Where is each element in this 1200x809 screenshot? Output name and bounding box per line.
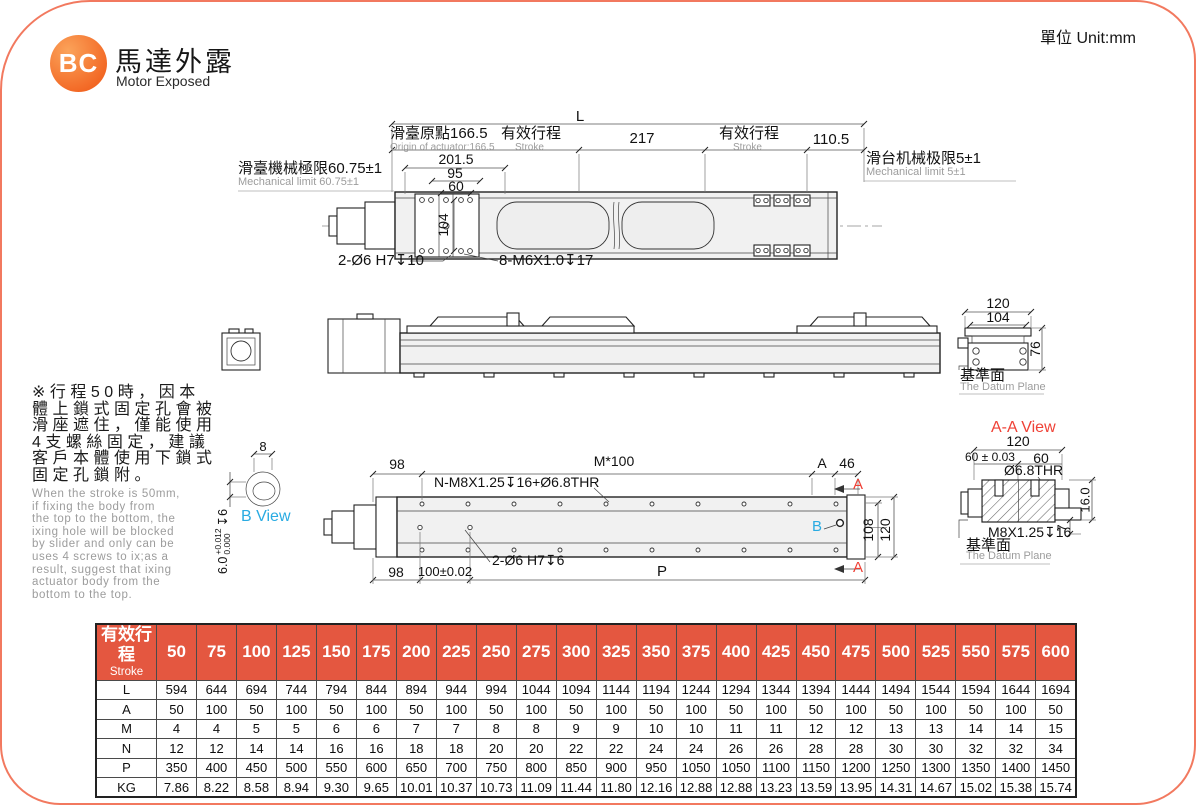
- table-cell: 9: [556, 719, 596, 739]
- aa-thru-hole-note: Ø6.8THR: [1004, 463, 1063, 477]
- mech-limit-left-zh: 滑臺機械極限60.75±1: [238, 161, 382, 176]
- table-cell: 50: [956, 700, 996, 720]
- dim-P: P: [657, 564, 667, 579]
- table-cell: 1194: [636, 680, 676, 700]
- unit-label: 單位 Unit:mm: [1040, 24, 1136, 48]
- datum-plane-en: The Datum Plane: [960, 382, 1046, 393]
- dim-120-vertical: 120: [878, 518, 892, 541]
- stroke-col-header: 125: [276, 624, 316, 680]
- table-row: P350400450500550600650700750800850900950…: [96, 758, 1076, 778]
- table-row: N121214141616181820202222242426262828303…: [96, 739, 1076, 759]
- table-cell: 14: [996, 719, 1036, 739]
- table-cell: 7.86: [157, 778, 197, 798]
- table-cell: 100: [436, 700, 476, 720]
- dim-46: 46: [839, 456, 855, 470]
- table-cell: 10.37: [436, 778, 476, 798]
- stroke-col-header: 150: [316, 624, 356, 680]
- table-cell: 1544: [916, 680, 956, 700]
- table-cell: 30: [876, 739, 916, 759]
- table-cell: 1344: [756, 680, 796, 700]
- tolerance-minus: 0.000: [223, 528, 232, 554]
- table-cell: 1444: [836, 680, 876, 700]
- table-cell: 1450: [1036, 758, 1076, 778]
- end-view-dim-104: 104: [986, 310, 1009, 324]
- table-cell: 50: [157, 700, 197, 720]
- table-cell: 800: [516, 758, 556, 778]
- table-cell: 1150: [796, 758, 836, 778]
- table-cell: 12: [836, 719, 876, 739]
- table-cell: 28: [836, 739, 876, 759]
- end-view-dim-76: 76: [1028, 341, 1042, 357]
- table-cell: 1494: [876, 680, 916, 700]
- table-cell: 100: [676, 700, 716, 720]
- stroke-col-header: 325: [596, 624, 636, 680]
- stroke-col-header: 250: [476, 624, 516, 680]
- stroke-col-header: 400: [716, 624, 756, 680]
- table-cell: 900: [596, 758, 636, 778]
- stroke-label-zh-2: 有效行程: [719, 126, 779, 141]
- table-cell: 100: [276, 700, 316, 720]
- table-cell: 1100: [756, 758, 796, 778]
- table-cell: 9.65: [356, 778, 396, 798]
- table-cell: 10: [676, 719, 716, 739]
- bc-logo: BC: [50, 35, 107, 92]
- tolerance-stack: +0.012 0.000: [214, 528, 232, 554]
- table-cell: 1200: [836, 758, 876, 778]
- dim-100-tol: 100±0.02: [418, 565, 472, 578]
- table-cell: 15.02: [956, 778, 996, 798]
- row-label: N: [96, 739, 157, 759]
- table-cell: 8: [516, 719, 556, 739]
- row-label: A: [96, 700, 157, 720]
- table-cell: 12: [157, 739, 197, 759]
- table-cell: 20: [516, 739, 556, 759]
- stroke-col-header: 575: [996, 624, 1036, 680]
- table-cell: 1300: [916, 758, 956, 778]
- stroke-col-header: 450: [796, 624, 836, 680]
- stroke-col-header: 300: [556, 624, 596, 680]
- row-label: KG: [96, 778, 157, 798]
- stroke-label-zh: 有效行程: [501, 126, 561, 141]
- table-cell: 1050: [716, 758, 756, 778]
- table-cell: 50: [716, 700, 756, 720]
- table-cell: 1644: [996, 680, 1036, 700]
- table-cell: 100: [596, 700, 636, 720]
- table-cell: 15: [1036, 719, 1076, 739]
- table-header-row: 有效行程Stroke507510012515017520022525027530…: [96, 624, 1076, 680]
- table-cell: 750: [476, 758, 516, 778]
- table-cell: 100: [356, 700, 396, 720]
- table-cell: 550: [316, 758, 356, 778]
- table-cell: 894: [396, 680, 436, 700]
- origin-label-zh: 滑臺原點166.5: [390, 126, 488, 141]
- table-cell: 1050: [676, 758, 716, 778]
- table-cell: 594: [157, 680, 197, 700]
- table-cell: 744: [276, 680, 316, 700]
- table-cell: 18: [396, 739, 436, 759]
- table-cell: 944: [436, 680, 476, 700]
- dim-60: 60: [448, 179, 464, 193]
- dim-217: 217: [629, 131, 654, 146]
- table-cell: 50: [476, 700, 516, 720]
- table-cell: 1244: [676, 680, 716, 700]
- table-cell: 1094: [556, 680, 596, 700]
- table-cell: 13: [916, 719, 956, 739]
- table-cell: 18: [436, 739, 476, 759]
- table-cell: 9.30: [316, 778, 356, 798]
- aa-datum-plane-en: The Datum Plane: [966, 551, 1052, 562]
- page-title-en: Motor Exposed: [116, 73, 210, 89]
- table-cell: 5: [236, 719, 276, 739]
- stroke-col-header: 600: [1036, 624, 1076, 680]
- dim-98-top: 98: [389, 457, 405, 471]
- table-cell: 50: [1036, 700, 1076, 720]
- table-cell: 13: [876, 719, 916, 739]
- table-cell: 794: [316, 680, 356, 700]
- table-cell: 600: [356, 758, 396, 778]
- table-cell: 20: [476, 739, 516, 759]
- table-cell: 100: [196, 700, 236, 720]
- table-cell: 50: [396, 700, 436, 720]
- b-detail-marker: B: [812, 519, 822, 534]
- table-cell: 1594: [956, 680, 996, 700]
- dim-98-bottom: 98: [388, 565, 404, 579]
- table-cell: 9: [596, 719, 636, 739]
- table-cell: 850: [556, 758, 596, 778]
- table-cell: 22: [596, 739, 636, 759]
- dim-201-5: 201.5: [438, 152, 473, 166]
- table-cell: 50: [556, 700, 596, 720]
- table-cell: 10: [636, 719, 676, 739]
- table-cell: 7: [396, 719, 436, 739]
- stroke-col-header: 275: [516, 624, 556, 680]
- b-view-dim-8: 8: [259, 440, 266, 453]
- table-cell: 5: [276, 719, 316, 739]
- table-cell: 16: [316, 739, 356, 759]
- table-cell: 8.94: [276, 778, 316, 798]
- table-cell: 4: [157, 719, 197, 739]
- section-a-label-bottom: A: [853, 560, 863, 575]
- table-cell: 26: [716, 739, 756, 759]
- datasheet-page: BC 馬達外露 Motor Exposed 單位 Unit:mm: [0, 0, 1196, 805]
- table-cell: 28: [796, 739, 836, 759]
- table-cell: 1694: [1036, 680, 1076, 700]
- stroke-header-cell: 有效行程Stroke: [96, 624, 157, 680]
- table-cell: 694: [236, 680, 276, 700]
- b-view-tolerance: 6.0 +0.012 0.000 ↧6: [214, 509, 232, 574]
- table-cell: 50: [236, 700, 276, 720]
- stroke-col-header: 425: [756, 624, 796, 680]
- row-label: L: [96, 680, 157, 700]
- table-cell: 12.16: [636, 778, 676, 798]
- table-cell: 1250: [876, 758, 916, 778]
- table-cell: 14: [236, 739, 276, 759]
- stroke-col-header: 175: [356, 624, 396, 680]
- table-cell: 994: [476, 680, 516, 700]
- table-cell: 450: [236, 758, 276, 778]
- table-cell: 12: [796, 719, 836, 739]
- stroke-col-header: 475: [836, 624, 876, 680]
- table-cell: 11.80: [596, 778, 636, 798]
- table-cell: 844: [356, 680, 396, 700]
- stroke-label-en-2: Stroke: [733, 143, 762, 153]
- stroke-col-header: 500: [876, 624, 916, 680]
- table-cell: 50: [636, 700, 676, 720]
- table-cell: 14.31: [876, 778, 916, 798]
- dim-108-vertical: 108: [861, 518, 875, 541]
- table-cell: 11: [756, 719, 796, 739]
- dim-L: L: [576, 109, 584, 124]
- thread-note: N-M8X1.25↧16+Ø6.8THR: [434, 475, 599, 489]
- table-cell: 8.22: [196, 778, 236, 798]
- table-cell: 24: [676, 739, 716, 759]
- table-cell: 100: [756, 700, 796, 720]
- dim-m100: M*100: [594, 454, 634, 468]
- table-row: A501005010050100501005010050100501005010…: [96, 700, 1076, 720]
- stroke-table: 有效行程Stroke507510012515017520022525027530…: [95, 623, 1077, 798]
- stroke-col-header: 200: [396, 624, 436, 680]
- section-a-label-top: A: [853, 477, 863, 492]
- table-cell: 34: [1036, 739, 1076, 759]
- table-cell: 7: [436, 719, 476, 739]
- stroke-col-header: 525: [916, 624, 956, 680]
- hole-note-dowel-top: 2-Ø6 H7↧10: [338, 253, 424, 268]
- table-cell: 6: [316, 719, 356, 739]
- stroke-col-header: 350: [636, 624, 676, 680]
- side-view-drawing: [222, 309, 1046, 394]
- table-cell: 12.88: [716, 778, 756, 798]
- table-cell: 100: [916, 700, 956, 720]
- stroke-note-en: When the stroke is 50mm, if fixing the b…: [32, 488, 180, 601]
- table-cell: 50: [876, 700, 916, 720]
- table-cell: 50: [316, 700, 356, 720]
- aa-dim-120: 120: [1006, 434, 1029, 448]
- table-cell: 10.01: [396, 778, 436, 798]
- end-view-dim-120: 120: [986, 296, 1009, 310]
- mech-limit-right-en: Mechanical limit 5±1: [866, 167, 966, 178]
- dim-104-vertical: 104: [436, 213, 450, 236]
- stroke-label-en: Stroke: [515, 143, 544, 153]
- table-cell: 400: [196, 758, 236, 778]
- stroke-note-zh: ※行程50時，因本 體上鎖式固定孔會被 滑座遮住，僅能使用 4支螺絲固定，建議 …: [32, 385, 217, 484]
- table-cell: 1394: [796, 680, 836, 700]
- table-cell: 4: [196, 719, 236, 739]
- table-cell: 15.38: [996, 778, 1036, 798]
- stroke-col-header: 100: [236, 624, 276, 680]
- table-cell: 14: [956, 719, 996, 739]
- row-label: P: [96, 758, 157, 778]
- table-cell: 1294: [716, 680, 756, 700]
- mech-limit-left-en: Mechanical limit 60.75±1: [238, 177, 359, 188]
- table-row: KG7.868.228.588.949.309.6510.0110.3710.7…: [96, 778, 1076, 798]
- table-cell: 22: [556, 739, 596, 759]
- table-cell: 1144: [596, 680, 636, 700]
- table-cell: 24: [636, 739, 676, 759]
- table-cell: 12: [196, 739, 236, 759]
- table-cell: 650: [396, 758, 436, 778]
- table-cell: 15.74: [1036, 778, 1076, 798]
- table-cell: 13.59: [796, 778, 836, 798]
- table-cell: 11.44: [556, 778, 596, 798]
- b-view-title: B View: [241, 509, 291, 525]
- table-cell: 6: [356, 719, 396, 739]
- table-cell: 644: [196, 680, 236, 700]
- table-cell: 350: [157, 758, 197, 778]
- top-view-drawing: [238, 121, 1016, 261]
- hole-note-dowel-bottom: 2-Ø6 H7↧6: [492, 553, 564, 567]
- table-cell: 100: [996, 700, 1036, 720]
- stroke-col-header: 225: [436, 624, 476, 680]
- row-label: M: [96, 719, 157, 739]
- table-cell: 100: [836, 700, 876, 720]
- table-cell: 13.23: [756, 778, 796, 798]
- table-cell: 500: [276, 758, 316, 778]
- table-cell: 8: [476, 719, 516, 739]
- table-cell: 14.67: [916, 778, 956, 798]
- table-cell: 30: [916, 739, 956, 759]
- mech-limit-right-zh: 滑台机械极限5±1: [866, 151, 981, 166]
- table-cell: 32: [956, 739, 996, 759]
- table-cell: 1400: [996, 758, 1036, 778]
- table-cell: 11.09: [516, 778, 556, 798]
- table-cell: 26: [756, 739, 796, 759]
- table-cell: 1044: [516, 680, 556, 700]
- tolerance-nominal: 6.0: [216, 557, 230, 574]
- table-cell: 11: [716, 719, 756, 739]
- table-cell: 700: [436, 758, 476, 778]
- table-cell: 950: [636, 758, 676, 778]
- table-cell: 14: [276, 739, 316, 759]
- table-cell: 100: [516, 700, 556, 720]
- table-row: M4455667788991010111112121313141415: [96, 719, 1076, 739]
- table-cell: 16: [356, 739, 396, 759]
- tolerance-depth: ↧6: [215, 509, 230, 526]
- table-cell: 13.95: [836, 778, 876, 798]
- table-cell: 10.73: [476, 778, 516, 798]
- stroke-col-header: 75: [196, 624, 236, 680]
- dim-A: A: [817, 456, 826, 470]
- table-cell: 32: [996, 739, 1036, 759]
- aa-dim-16: 16.0: [1079, 487, 1092, 512]
- table-row: L594644694744794844894944994104410941144…: [96, 680, 1076, 700]
- table-cell: 50: [796, 700, 836, 720]
- table-cell: 12.88: [676, 778, 716, 798]
- stroke-col-header: 550: [956, 624, 996, 680]
- hole-note-screw-top: 8-M6X1.0↧17: [499, 253, 593, 268]
- stroke-col-header: 375: [676, 624, 716, 680]
- stroke-col-header: 50: [157, 624, 197, 680]
- table-cell: 8.58: [236, 778, 276, 798]
- table-cell: 1350: [956, 758, 996, 778]
- dim-110-5: 110.5: [813, 132, 849, 147]
- b-view-drawing: [227, 451, 280, 507]
